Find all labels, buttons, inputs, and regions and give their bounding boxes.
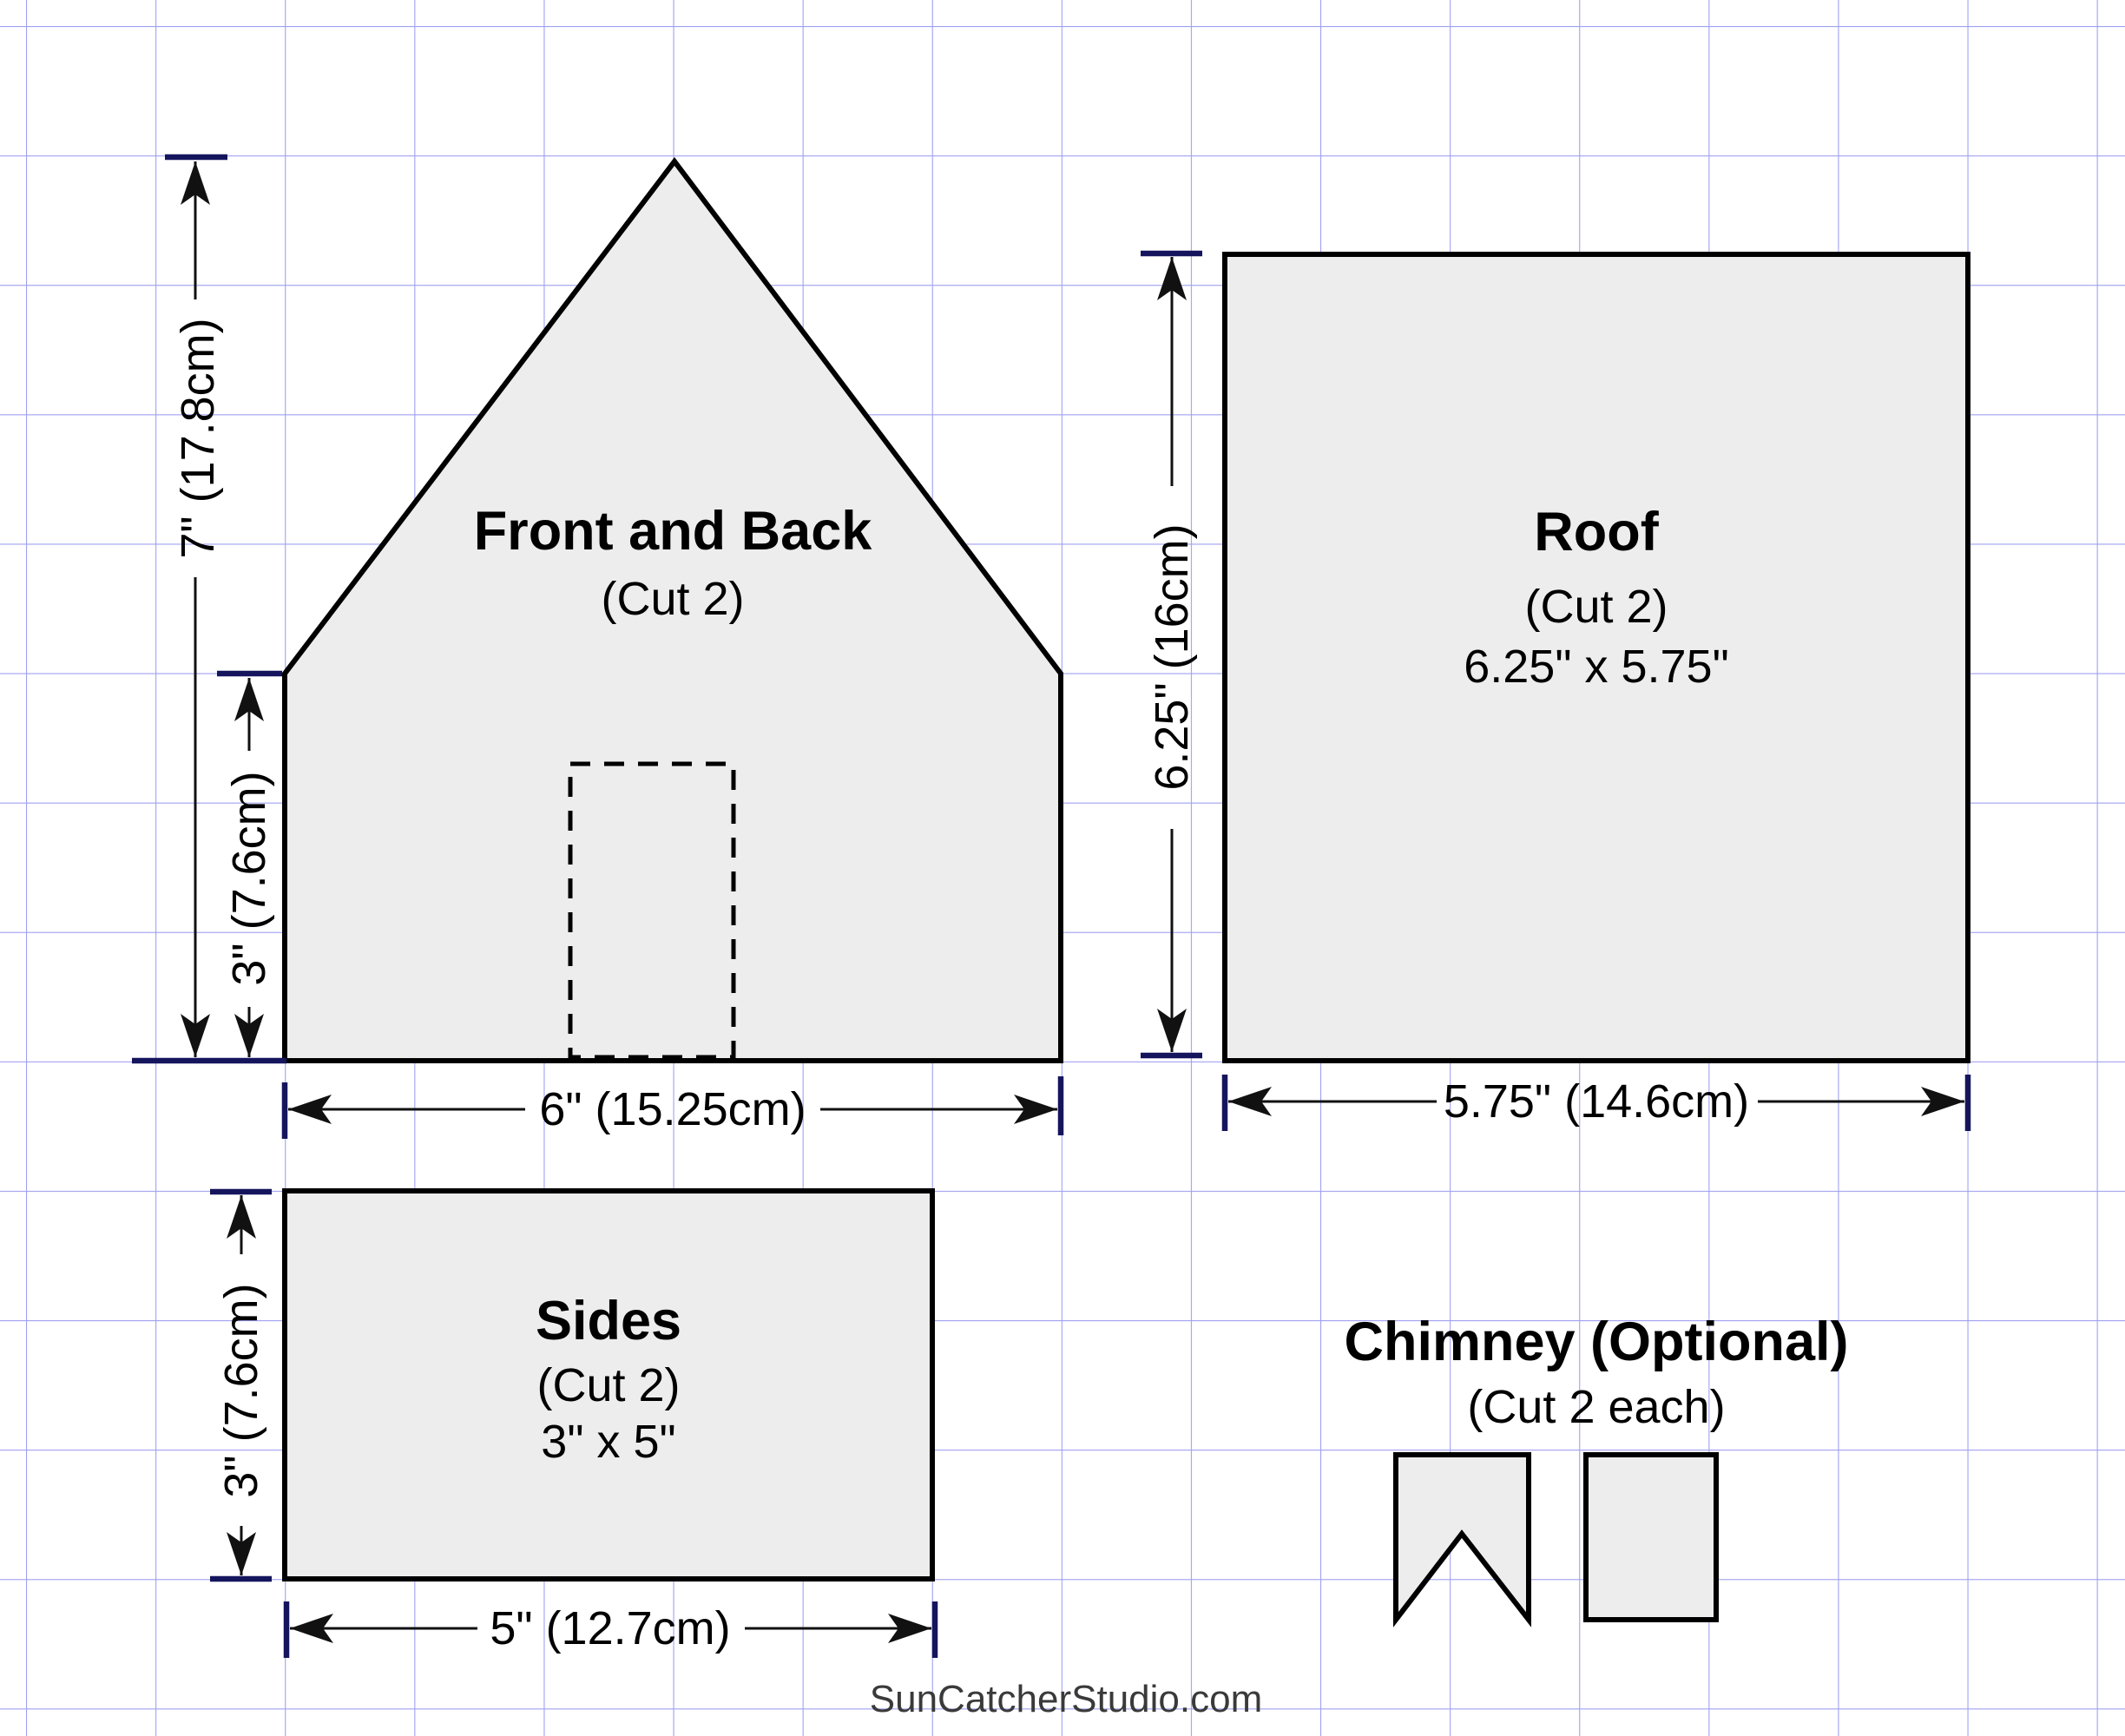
template-diagram: Front and Back (Cut 2) 7" (17.8cm) 3" (7… [0,0,2125,1736]
label-front-back-wall: 3" (7.6cm) [223,771,275,985]
roof-subtitle: (Cut 2) [1524,581,1668,633]
sides-subtitle: (Cut 2) [536,1359,680,1411]
roof-piece: Roof (Cut 2) 6.25" x 5.75" [1225,254,1968,1061]
label-sides-height: 3" (7.6cm) [215,1283,267,1497]
label-roof-width: 5.75" (14.6cm) [1444,1075,1749,1128]
label-roof-height: 6.25" (16cm) [1146,523,1198,790]
chimney-title: Chimney (Optional) [1345,1312,1849,1372]
label-front-back-width: 6" (15.25cm) [539,1083,806,1135]
label-front-back-height: 7" (17.8cm) [172,318,224,558]
label-sides-width: 5" (12.7cm) [490,1602,730,1654]
watermark: SunCatcherStudio.com [870,1678,1262,1720]
sides-title: Sides [536,1291,681,1351]
roof-title: Roof [1534,502,1659,562]
front-back-subtitle: (Cut 2) [601,573,744,625]
sides-piece: Sides (Cut 2) 3" x 5" [285,1191,932,1579]
chimney-subtitle: (Cut 2 each) [1467,1381,1725,1433]
front-back-title: Front and Back [474,501,873,562]
pattern-sheet: Front and Back (Cut 2) 7" (17.8cm) 3" (7… [0,0,2125,1736]
sides-size: 3" x 5" [541,1416,675,1468]
roof-size: 6.25" x 5.75" [1464,641,1729,693]
chimney-rect-shape [1586,1455,1716,1620]
